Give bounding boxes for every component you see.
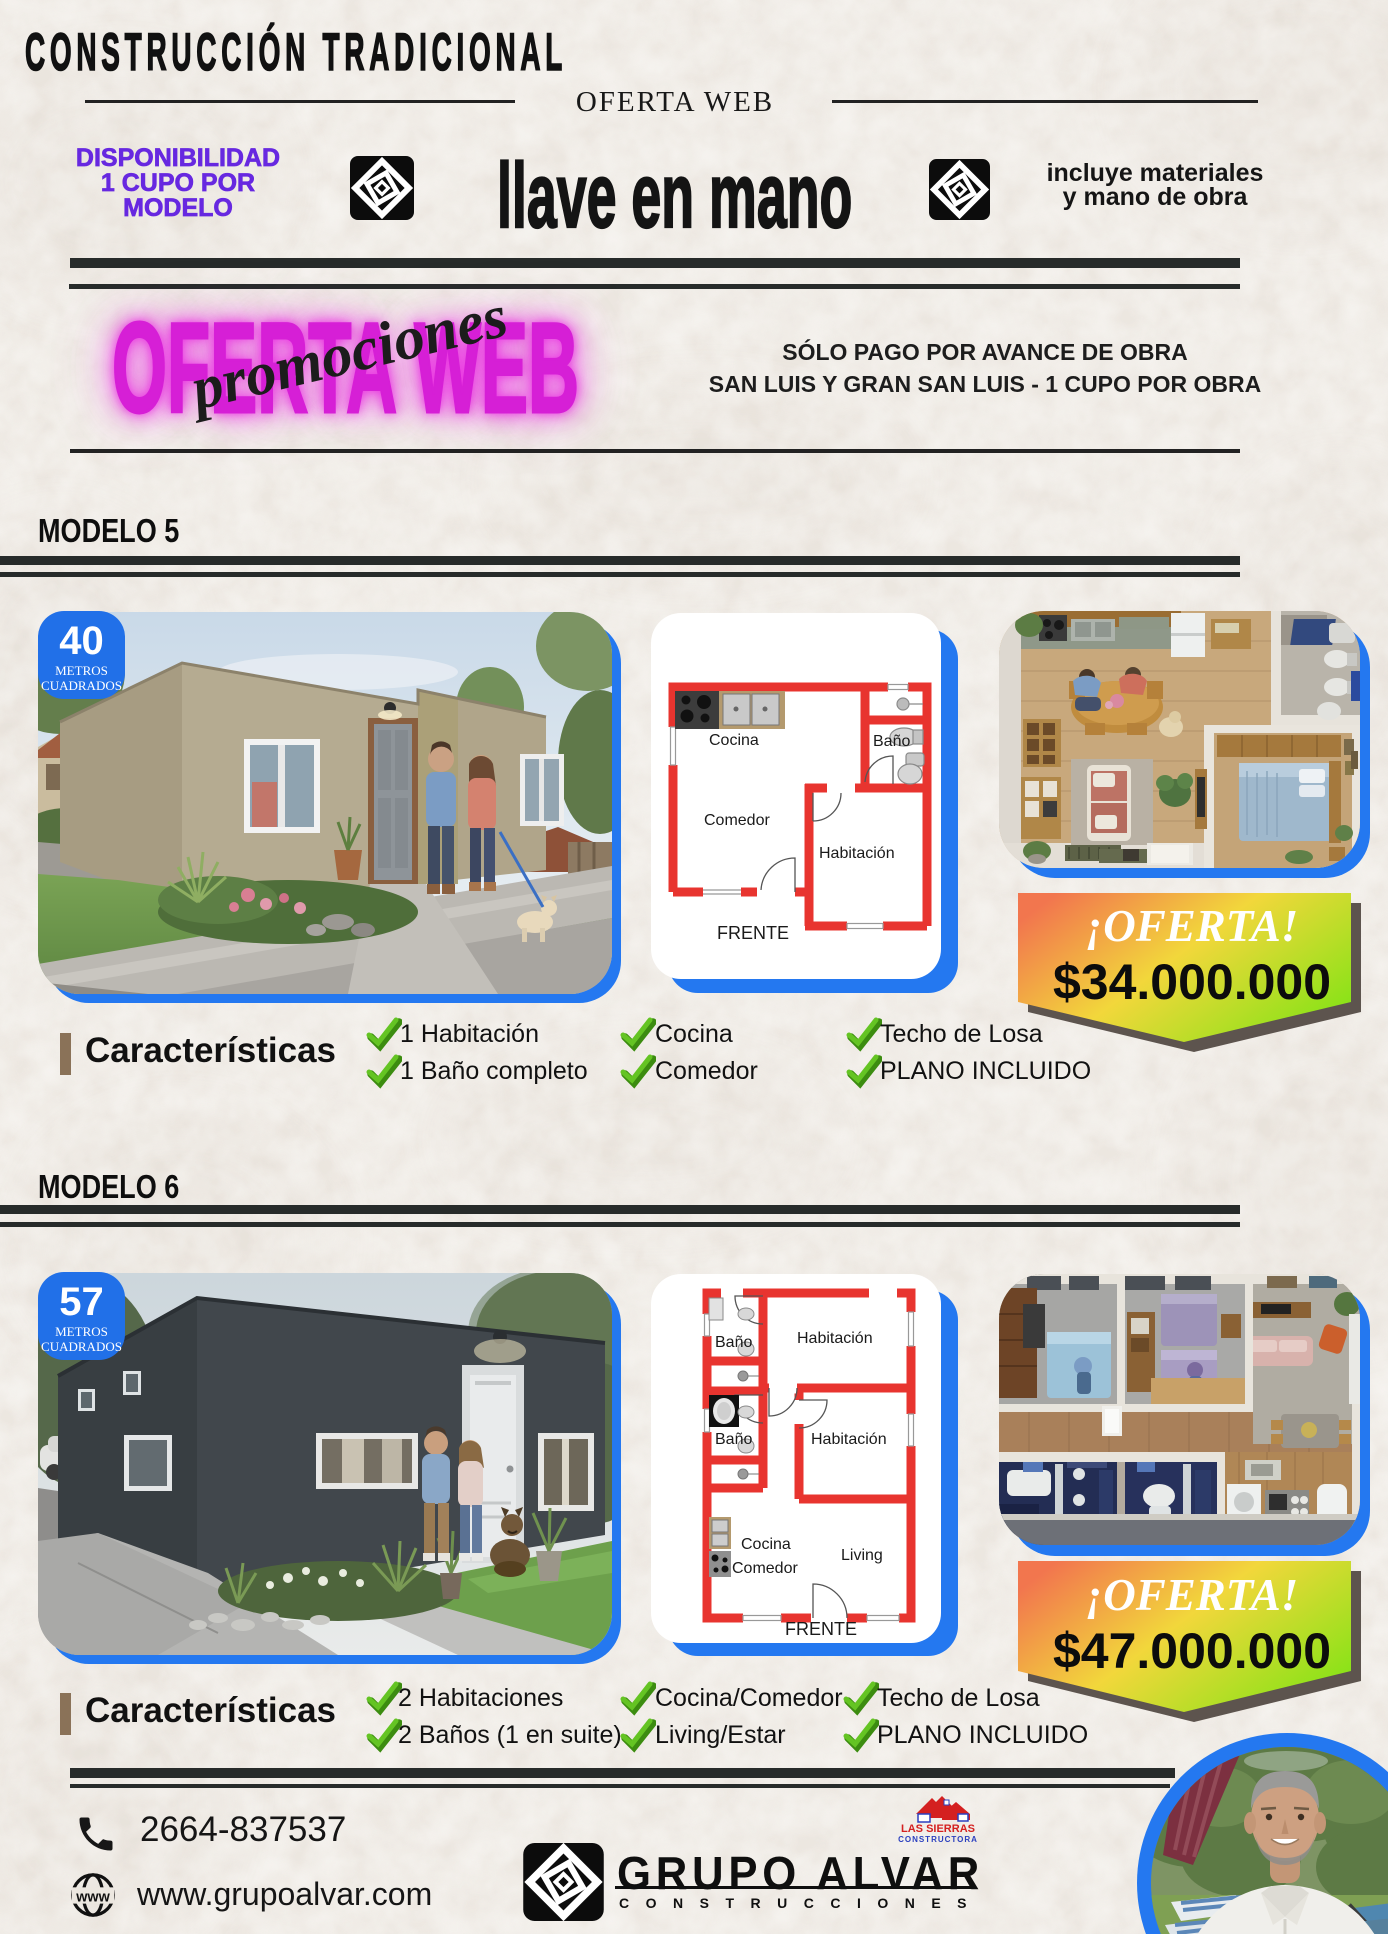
svg-text:Baño: Baño	[715, 1431, 752, 1448]
svg-text:Habitación: Habitación	[797, 1330, 873, 1347]
svg-text:¡OFERTA!: ¡OFERTA!	[1086, 901, 1299, 951]
svg-text:Living: Living	[841, 1547, 883, 1564]
svg-text:Habitación: Habitación	[811, 1431, 887, 1448]
svg-text:¡OFERTA!: ¡OFERTA!	[1086, 1570, 1299, 1620]
svg-text:Cocina: Cocina	[741, 1536, 791, 1553]
svg-text:Baño: Baño	[873, 733, 910, 750]
svg-text:Comedor: Comedor	[704, 812, 770, 829]
svg-text:LAS SIERRAS: LAS SIERRAS	[901, 1823, 975, 1835]
svg-text:www: www	[75, 1890, 110, 1906]
svg-text:$47.000.000: $47.000.000	[1053, 1623, 1331, 1679]
svg-text:FRENTE: FRENTE	[717, 923, 789, 943]
svg-text:Habitación: Habitación	[819, 845, 895, 862]
svg-text:FRENTE: FRENTE	[785, 1619, 857, 1639]
svg-text:Comedor: Comedor	[732, 1560, 798, 1577]
svg-text:Cocina: Cocina	[709, 732, 759, 749]
svg-text:Baño: Baño	[715, 1334, 752, 1351]
svg-text:$34.000.000: $34.000.000	[1053, 954, 1331, 1010]
svg-text:CONSTRUCTORA: CONSTRUCTORA	[898, 1835, 978, 1844]
